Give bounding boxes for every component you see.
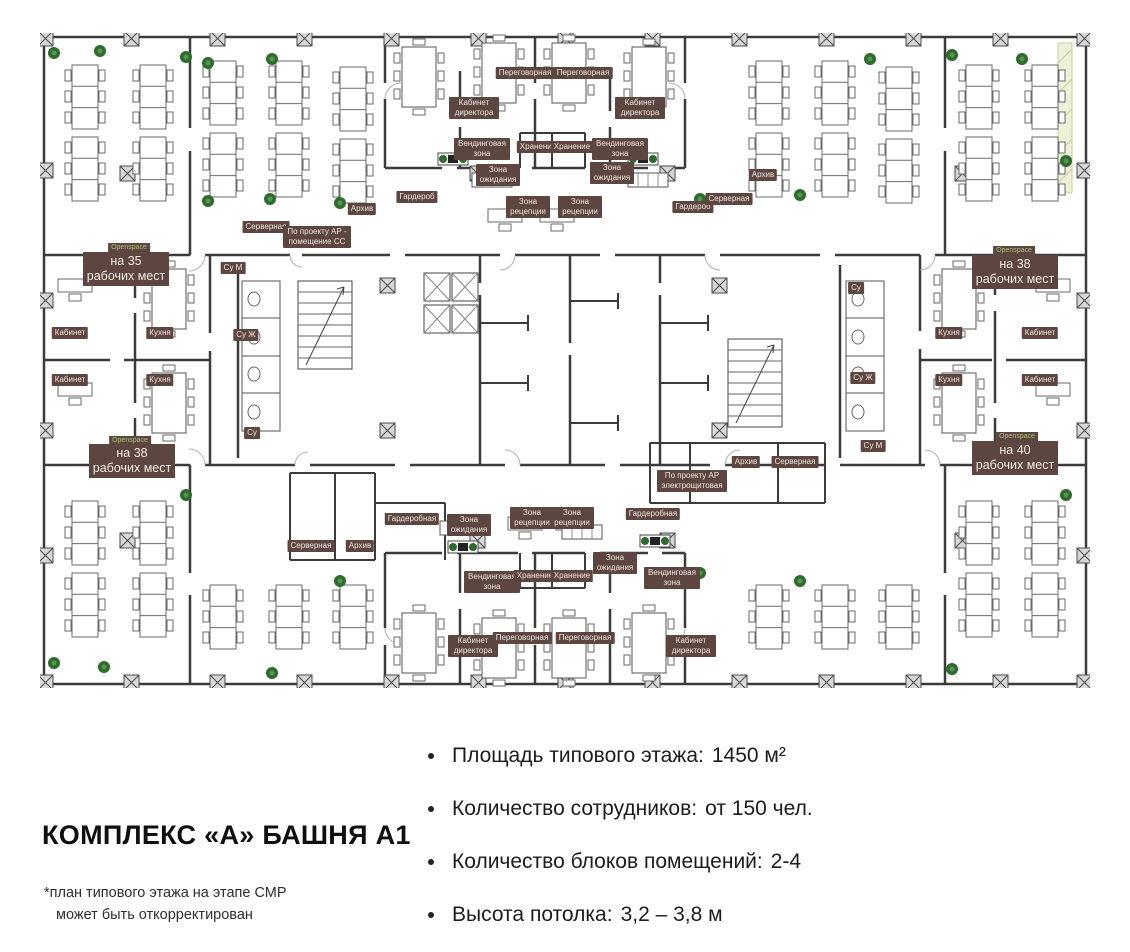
room-label-meeting-bottom-left: Переговорная [493, 632, 552, 644]
room-label-wc-left: Су [244, 427, 260, 439]
room-label-kitchen-left-1: Кухня [146, 327, 173, 339]
footnote-line-2: может быть откорректирован [44, 904, 287, 926]
spec-label: Площадь типового этажа: [452, 744, 704, 768]
spec-label: Высота потолка: [452, 903, 613, 927]
room-labels-layer: Openspace на 35 рабочих мест Openspace н… [0, 0, 1130, 700]
room-label-archive-top-right: Архив [749, 169, 777, 181]
room-label-vending-bottom-left: Вендинговая зона [464, 571, 520, 593]
floorplan: Openspace на 35 рабочих мест Openspace н… [0, 0, 1130, 700]
spec-ceiling-height: Высота потолка: 3,2 – 3,8 м [428, 903, 813, 927]
room-label-meeting-bottom-right: Переговорная [556, 632, 615, 644]
room-label-meeting-top-left: Переговорная [496, 67, 555, 79]
room-label-wc-female-right: Су Ж [850, 372, 875, 384]
openspace-capacity-top-left: на 35 рабочих мест [83, 252, 169, 286]
spec-value: 1450 м² [712, 744, 786, 768]
room-label-reception-bottom-right: Зона рецепции [550, 507, 594, 529]
room-label-vending-top-right: Вендинговая зона [592, 138, 648, 160]
page-title: КОМПЛЕКС «А» БАШНЯ А1 [42, 820, 411, 851]
spec-value: от 150 чел. [705, 797, 813, 821]
bullet-dot [428, 806, 434, 812]
room-label-reception-top-right: Зона рецепции [558, 196, 602, 218]
bullet-dot [428, 912, 434, 918]
room-label-wc-male-right: Су М [861, 440, 886, 452]
room-label-server-bottom-left: Серверная [288, 540, 335, 552]
room-label-storage-bottom-right: Хранение [551, 570, 593, 582]
room-label-director-top-left: Кабинет директора [449, 97, 499, 119]
room-label-wc-male-left: Су М [221, 262, 246, 274]
footnote-line-1: *план типового этажа на этапе СМР [44, 885, 287, 901]
bullet-dot [428, 859, 434, 865]
room-label-server-top-right: Серверная [706, 193, 753, 205]
room-label-archive-bottom-left: Архив [346, 540, 374, 552]
room-label-waiting-bottom-center: Зона ожидания [593, 552, 637, 574]
room-label-wardrobe-top-left: Гардероб [396, 191, 437, 203]
room-label-wc-female-left: Су Ж [233, 329, 258, 341]
room-label-waiting-top-left: Зона ожидания [476, 164, 520, 186]
room-label-director-bottom-left: Кабинет директора [448, 635, 498, 657]
room-label-director-top-right: Кабинет директора [615, 97, 665, 119]
room-label-meeting-top-right: Переговорная [554, 67, 613, 79]
room-label-archive-bottom-right: Архив [732, 456, 760, 468]
room-label-vending-top-left: Вендинговая зона [454, 138, 510, 160]
room-label-waiting-bottom-left: Зона ожидания [447, 514, 491, 536]
room-label-reception-bottom-left: Зона рецепции [510, 507, 554, 529]
spec-value: 3,2 – 3,8 м [621, 903, 723, 927]
spec-list: Площадь типового этажа: 1450 м² Количест… [428, 744, 813, 952]
room-label-reception-top-left: Зона рецепции [506, 196, 550, 218]
room-label-waiting-top-right: Зона ожидания [590, 162, 634, 184]
room-label-office-right-1: Кабинет [1022, 327, 1058, 339]
room-label-kitchen-right-1: Кухня [935, 327, 962, 339]
openspace-capacity-top-right: на 38 рабочих мест [972, 255, 1058, 289]
spec-blocks: Количество блоков помещений: 2-4 [428, 850, 813, 874]
room-label-office-left-1: Кабинет [52, 327, 88, 339]
room-label-storage-top-right: Хранение [551, 141, 593, 153]
spec-value: 2-4 [771, 850, 801, 874]
room-label-wc-right: Су [848, 282, 864, 294]
room-label-wardrobe-bottom-left: Гардеробная [385, 513, 439, 525]
room-label-archive-top-left: Архив [348, 203, 376, 215]
spec-label: Количество блоков помещений: [452, 850, 763, 874]
spec-label: Количество сотрудников: [452, 797, 697, 821]
room-label-vending-bottom-right: Вендинговая зона [644, 567, 700, 589]
bullet-dot [428, 753, 434, 759]
room-label-kitchen-right-2: Кухня [935, 374, 962, 386]
room-label-director-bottom-right: Кабинет директора [666, 635, 716, 657]
spec-floor-area: Площадь типового этажа: 1450 м² [428, 744, 813, 768]
room-label-office-left-2: Кабинет [52, 374, 88, 386]
footnote: *план типового этажа на этапе СМРможет б… [44, 882, 287, 927]
spec-employees: Количество сотрудников: от 150 чел. [428, 797, 813, 821]
room-label-server-bottom-right: Серверная [772, 456, 819, 468]
page: Openspace на 35 рабочих мест Openspace н… [0, 0, 1130, 952]
room-label-kitchen-left-2: Кухня [146, 374, 173, 386]
room-label-ar-project-room: По проекту АР - помещение СС [283, 226, 351, 248]
room-label-wardrobe-bottom-right: Гардеробная [626, 508, 680, 520]
openspace-capacity-bottom-left: на 38 рабочих мест [89, 444, 175, 478]
room-label-electrical-room: По проекту АР электрощитовая [657, 470, 727, 492]
room-label-office-right-2: Кабинет [1022, 374, 1058, 386]
openspace-capacity-bottom-right: на 40 рабочих мест [972, 441, 1058, 475]
